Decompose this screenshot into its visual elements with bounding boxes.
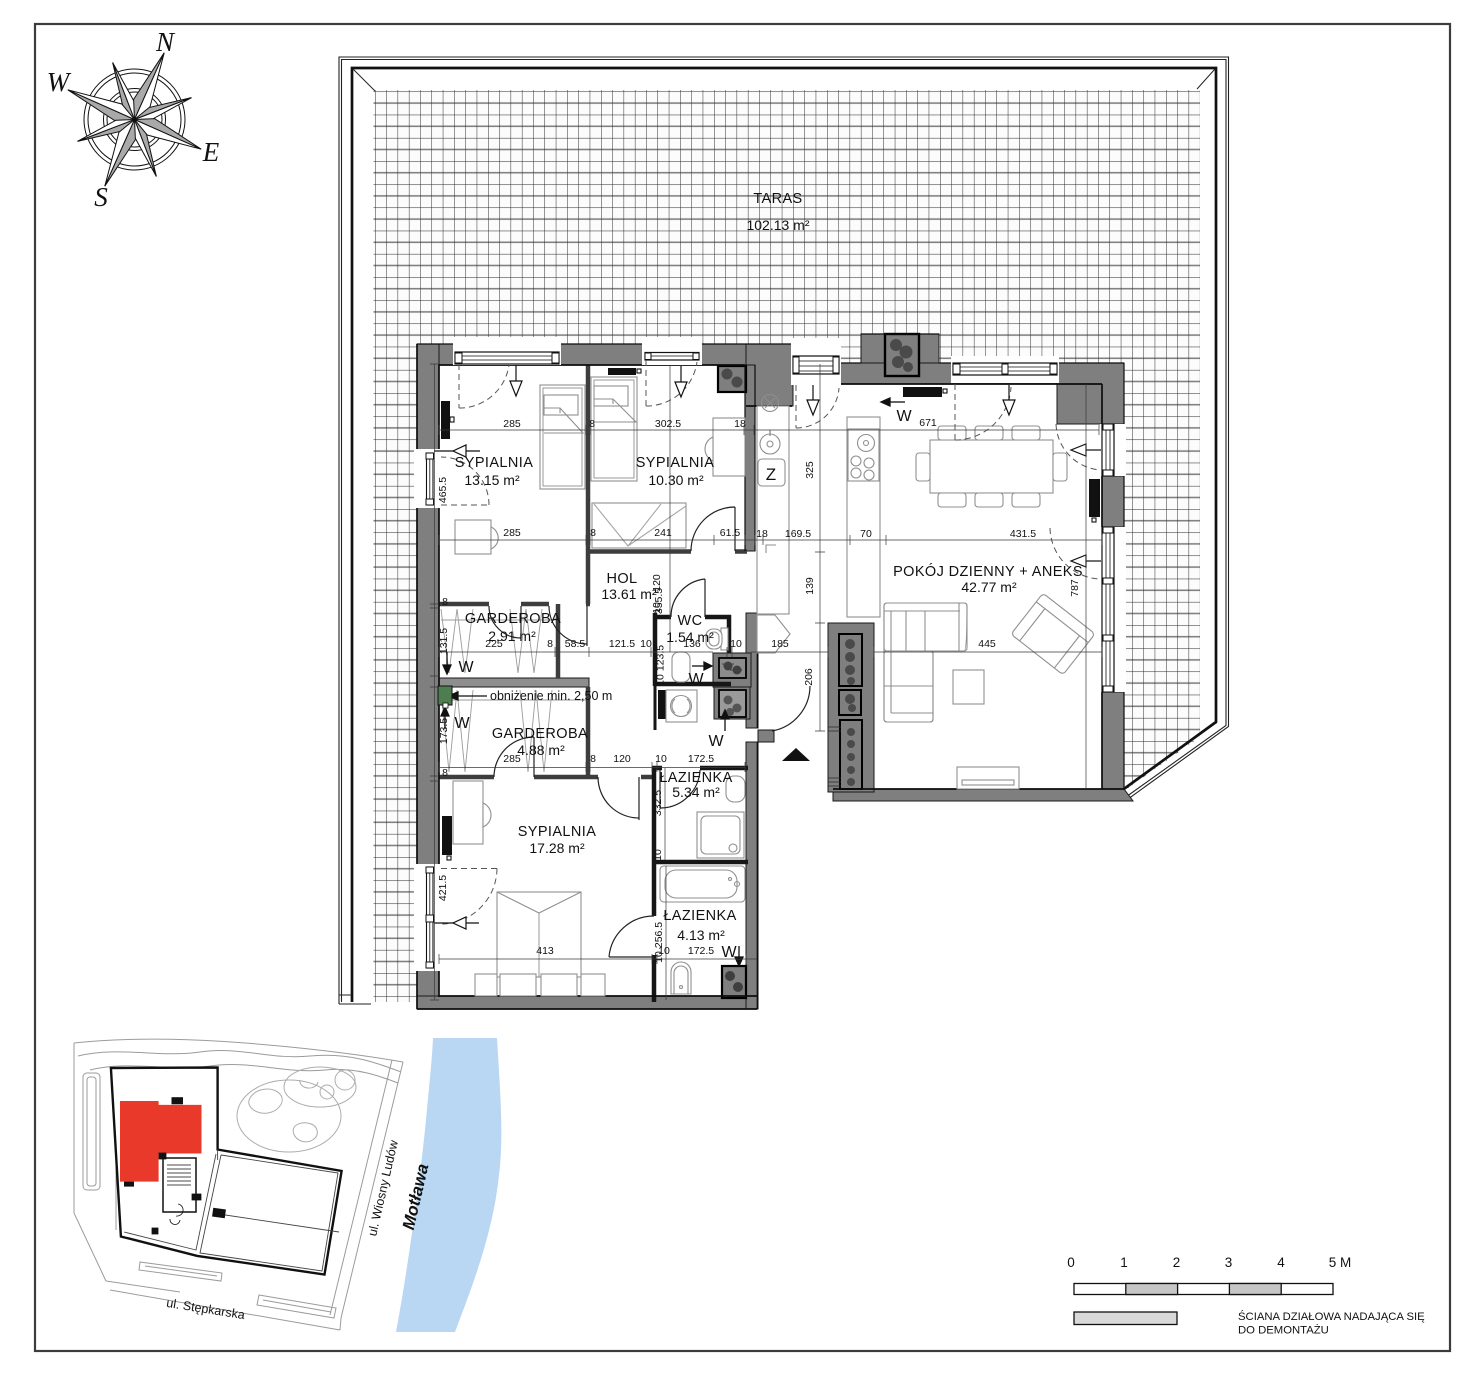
svg-text:42.77 m²: 42.77 m²: [961, 579, 1017, 595]
svg-text:SYPIALNIA: SYPIALNIA: [518, 824, 597, 840]
svg-text:WC: WC: [678, 613, 703, 629]
svg-text:4: 4: [1277, 1255, 1285, 1270]
svg-text:5.34 m²: 5.34 m²: [672, 784, 720, 800]
svg-text:ŁAZIENKA: ŁAZIENKA: [663, 908, 736, 924]
svg-text:W: W: [47, 67, 72, 97]
svg-text:121.5: 121.5: [609, 638, 635, 650]
svg-text:13.15 m²: 13.15 m²: [464, 472, 520, 488]
svg-text:17.28 m²: 17.28 m²: [529, 840, 585, 856]
svg-text:445: 445: [978, 638, 996, 650]
svg-text:8: 8: [590, 753, 596, 765]
svg-text:HOL: HOL: [606, 571, 637, 587]
svg-text:8: 8: [442, 596, 448, 608]
svg-text:10: 10: [730, 638, 742, 650]
svg-text:13.61 m²: 13.61 m²: [601, 586, 657, 602]
svg-text:325: 325: [804, 461, 816, 479]
svg-text:GARDEROBA: GARDEROBA: [465, 611, 561, 627]
svg-text:SYPIALNIA: SYPIALNIA: [455, 455, 534, 471]
svg-text:SYPIALNIA: SYPIALNIA: [636, 455, 715, 471]
svg-text:8: 8: [589, 418, 595, 430]
svg-text:DO DEMONTAŻU: DO DEMONTAŻU: [1238, 1324, 1329, 1337]
svg-text:10: 10: [655, 753, 667, 765]
svg-text:102.13 m²: 102.13 m²: [746, 217, 809, 233]
svg-text:ŚCIANA DZIAŁOWA NADAJĄCA SIĘ: ŚCIANA DZIAŁOWA NADAJĄCA SIĘ: [1238, 1310, 1425, 1323]
svg-text:2.91 m²: 2.91 m²: [488, 628, 536, 644]
svg-text:302.5: 302.5: [655, 418, 681, 430]
svg-text:W: W: [721, 944, 737, 961]
svg-text:431.5: 431.5: [1010, 528, 1036, 540]
svg-text:N: N: [155, 27, 176, 57]
svg-text:10.30 m²: 10.30 m²: [648, 472, 704, 488]
svg-text:TARAS: TARAS: [753, 191, 802, 207]
svg-text:POKÓJ DZIENNY + ANEKS: POKÓJ DZIENNY + ANEKS: [893, 563, 1083, 580]
svg-text:2: 2: [1173, 1255, 1181, 1270]
svg-text:S: S: [94, 182, 108, 212]
svg-text:421.5: 421.5: [437, 875, 449, 901]
svg-text:Z: Z: [766, 465, 776, 484]
svg-text:172.5: 172.5: [688, 753, 714, 765]
svg-text:10: 10: [651, 602, 663, 614]
svg-text:10: 10: [653, 951, 665, 963]
svg-text:58.5: 58.5: [565, 638, 586, 650]
svg-text:139: 139: [804, 577, 816, 595]
svg-text:W: W: [688, 671, 704, 688]
svg-text:285: 285: [503, 527, 521, 539]
svg-text:ul. Stępkarska: ul. Stępkarska: [165, 1296, 245, 1322]
svg-text:10: 10: [652, 849, 664, 861]
svg-text:3: 3: [1225, 1255, 1233, 1270]
svg-text:ul. Wiosny Ludów: ul. Wiosny Ludów: [365, 1138, 401, 1238]
svg-text:obniżenie min. 2,50 m: obniżenie min. 2,50 m: [490, 689, 612, 703]
svg-text:169.5: 169.5: [785, 528, 811, 540]
svg-text:4.13 m²: 4.13 m²: [677, 927, 725, 943]
svg-text:18: 18: [734, 418, 746, 430]
svg-text:120: 120: [613, 753, 631, 765]
svg-text:1: 1: [1120, 1255, 1128, 1270]
svg-text:E: E: [202, 137, 220, 167]
svg-text:123.5: 123.5: [655, 645, 667, 671]
svg-text:206: 206: [803, 668, 815, 686]
svg-text:W: W: [896, 408, 912, 425]
svg-text:8: 8: [590, 527, 596, 539]
svg-text:1.54 m²: 1.54 m²: [666, 629, 714, 645]
svg-text:173.5: 173.5: [438, 718, 450, 744]
svg-text:5 M: 5 M: [1329, 1255, 1352, 1270]
svg-text:465.5: 465.5: [437, 477, 449, 503]
svg-text:8: 8: [442, 767, 448, 779]
svg-text:8: 8: [547, 638, 553, 650]
svg-text:61.5: 61.5: [720, 527, 741, 539]
svg-text:787: 787: [1069, 579, 1081, 597]
svg-text:172.5: 172.5: [688, 945, 714, 957]
svg-text:W: W: [708, 733, 724, 750]
svg-text:4.88 m²: 4.88 m²: [517, 742, 565, 758]
svg-text:W: W: [458, 659, 474, 676]
svg-text:285: 285: [503, 418, 521, 430]
svg-text:70: 70: [860, 528, 872, 540]
svg-text:256.5: 256.5: [653, 922, 665, 948]
svg-text:18: 18: [756, 528, 768, 540]
svg-text:GARDEROBA: GARDEROBA: [492, 726, 588, 742]
svg-text:332.5: 332.5: [652, 790, 664, 816]
svg-text:671: 671: [919, 417, 937, 429]
svg-text:241: 241: [654, 527, 672, 539]
svg-text:10: 10: [655, 674, 667, 686]
svg-text:W: W: [454, 715, 470, 732]
svg-text:0: 0: [1067, 1255, 1075, 1270]
svg-text:185: 185: [771, 638, 789, 650]
svg-text:10: 10: [640, 638, 652, 650]
svg-text:413: 413: [536, 945, 554, 957]
svg-text:131.5: 131.5: [438, 628, 450, 654]
